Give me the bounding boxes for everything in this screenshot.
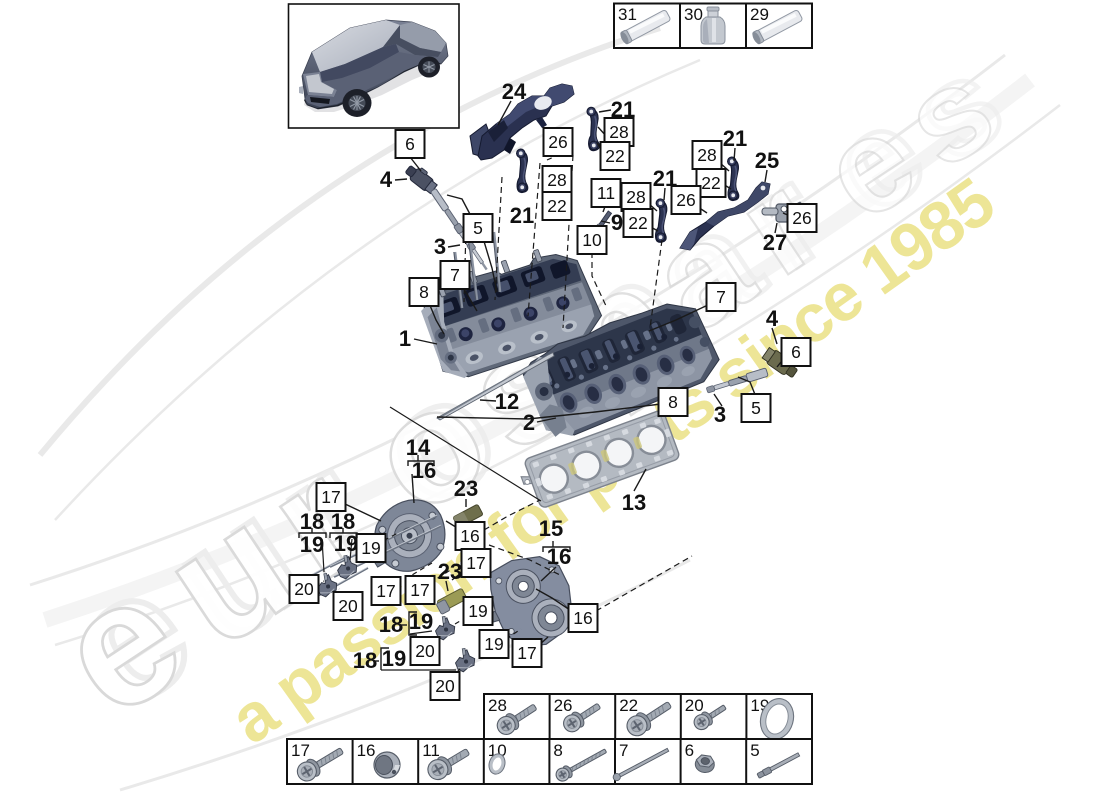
svg-text:4: 4 (766, 306, 779, 331)
svg-text:4: 4 (380, 167, 393, 192)
svg-text:6: 6 (685, 741, 694, 760)
svg-text:20: 20 (685, 696, 704, 715)
svg-text:20: 20 (338, 596, 358, 616)
svg-text:28: 28 (626, 187, 645, 207)
svg-text:16: 16 (412, 458, 436, 483)
svg-text:19: 19 (300, 532, 324, 557)
svg-text:28: 28 (488, 696, 507, 715)
svg-text:16: 16 (573, 608, 592, 628)
svg-text:16: 16 (460, 526, 479, 546)
svg-text:19: 19 (382, 646, 406, 671)
svg-text:19: 19 (468, 601, 487, 621)
svg-text:23: 23 (454, 476, 478, 501)
svg-text:28: 28 (547, 170, 566, 190)
svg-text:21: 21 (611, 97, 635, 122)
svg-text:26: 26 (548, 132, 567, 152)
svg-text:17: 17 (376, 581, 395, 601)
svg-text:31: 31 (618, 5, 637, 24)
svg-text:22: 22 (701, 173, 720, 193)
svg-text:20: 20 (294, 579, 314, 599)
svg-text:5: 5 (751, 398, 761, 418)
svg-text:11: 11 (422, 741, 440, 760)
svg-text:15: 15 (539, 516, 563, 541)
svg-text:6: 6 (405, 134, 415, 154)
svg-text:17: 17 (291, 741, 310, 760)
svg-text:25: 25 (755, 148, 779, 173)
svg-text:8: 8 (553, 741, 562, 760)
svg-text:19: 19 (484, 634, 503, 654)
svg-text:8: 8 (668, 392, 678, 412)
svg-text:8: 8 (419, 282, 429, 302)
svg-text:22: 22 (605, 146, 624, 166)
svg-text:1: 1 (399, 326, 411, 351)
svg-text:2: 2 (523, 410, 535, 435)
svg-text:9: 9 (611, 210, 623, 235)
svg-text:7: 7 (619, 741, 628, 760)
svg-text:21: 21 (653, 166, 677, 191)
svg-text:5: 5 (473, 218, 483, 238)
svg-text:19: 19 (361, 538, 380, 558)
svg-text:24: 24 (502, 79, 527, 104)
svg-text:19: 19 (409, 609, 433, 634)
svg-text:30: 30 (684, 5, 703, 24)
svg-text:28: 28 (609, 122, 628, 142)
svg-text:22: 22 (619, 696, 638, 715)
svg-text:28: 28 (697, 145, 716, 165)
svg-text:17: 17 (517, 643, 536, 663)
svg-text:27: 27 (763, 230, 787, 255)
svg-text:20: 20 (415, 641, 435, 661)
svg-text:26: 26 (554, 696, 573, 715)
svg-text:26: 26 (676, 190, 695, 210)
svg-text:21: 21 (510, 203, 534, 228)
svg-text:19: 19 (334, 531, 358, 556)
svg-text:7: 7 (716, 287, 726, 307)
svg-text:21: 21 (723, 126, 747, 151)
svg-text:17: 17 (410, 580, 429, 600)
svg-text:17: 17 (466, 553, 485, 573)
svg-text:29: 29 (750, 5, 769, 24)
svg-text:22: 22 (628, 213, 647, 233)
svg-text:16: 16 (357, 741, 376, 760)
svg-text:23: 23 (438, 559, 462, 584)
svg-text:16: 16 (547, 544, 571, 569)
svg-text:13: 13 (622, 490, 646, 515)
svg-text:26: 26 (792, 208, 811, 228)
svg-text:22: 22 (547, 196, 566, 216)
svg-text:7: 7 (450, 265, 460, 285)
svg-text:11: 11 (597, 183, 615, 203)
svg-text:3: 3 (714, 402, 726, 427)
svg-text:17: 17 (321, 487, 340, 507)
svg-text:12: 12 (495, 389, 519, 414)
svg-text:10: 10 (582, 230, 602, 250)
svg-text:5: 5 (750, 741, 759, 760)
svg-text:20: 20 (435, 676, 455, 696)
svg-text:3: 3 (434, 234, 446, 259)
svg-text:6: 6 (791, 342, 801, 362)
